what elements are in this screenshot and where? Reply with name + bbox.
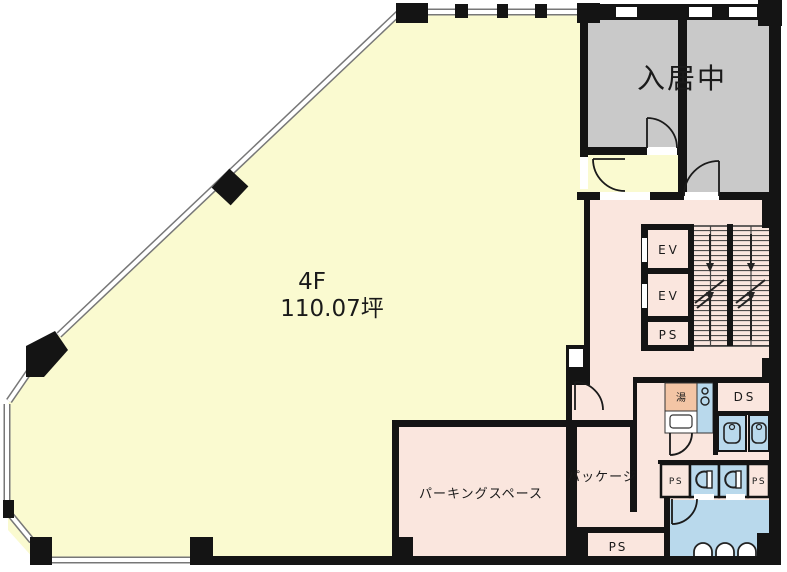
wall-segment — [566, 527, 670, 533]
stairwell — [694, 224, 769, 346]
wall-segment — [641, 224, 694, 230]
wall-segment — [566, 385, 572, 420]
elevator-upper-label: EV — [658, 243, 680, 257]
entry-vestibule — [580, 155, 678, 192]
wall-segment — [762, 196, 781, 228]
shaft-box — [569, 349, 583, 367]
toilet-tank-icon — [736, 471, 741, 488]
toilet-stall — [690, 464, 719, 497]
column-block — [455, 4, 468, 18]
wall-segment — [211, 556, 781, 565]
floor-plan-page: 4F 110.07坪 入居中 EV EV PS 湯 DS PS PS パッケージ… — [0, 0, 787, 567]
floor-plan-drawing: 4F 110.07坪 入居中 EV EV PS 湯 DS PS PS パッケージ… — [0, 0, 787, 567]
wall-segment — [392, 420, 399, 563]
wall-segment — [648, 316, 688, 322]
occupied-room-right — [687, 10, 770, 196]
toilet-tank-icon — [707, 471, 712, 488]
doorway-gap — [647, 147, 677, 155]
package-room-label: パッケージ — [567, 470, 637, 485]
column-block — [396, 3, 428, 23]
wall-segment — [630, 420, 637, 512]
hot-water-label: 湯 — [676, 391, 686, 404]
doorway-gap — [580, 157, 588, 189]
stall-door-gap — [726, 494, 745, 500]
doorway-gap — [684, 192, 719, 200]
doorway-gap — [600, 192, 650, 200]
window-gap — [729, 7, 757, 17]
column-block — [190, 537, 213, 565]
parking-room-label: パーキングスペース — [419, 487, 543, 502]
wall-segment — [392, 420, 637, 427]
elevator-door-gap — [642, 238, 647, 262]
wall-segment — [762, 358, 781, 381]
wall-segment — [580, 10, 588, 157]
column-block — [3, 500, 14, 518]
pipe-space-room-label: PS — [609, 540, 628, 554]
wall-segment — [678, 8, 687, 196]
wall-segment — [688, 224, 694, 351]
kitchenette-sink-unit — [697, 383, 713, 433]
window-gap — [616, 7, 637, 17]
unit-floor-label: 4F — [298, 269, 326, 295]
urinal-stall — [718, 415, 746, 451]
stair-divider-wall — [727, 224, 733, 346]
column-block — [497, 4, 508, 18]
column-block — [30, 537, 52, 565]
window-gap — [689, 7, 712, 17]
column-block — [535, 4, 547, 18]
sink-icon — [670, 415, 692, 428]
elevator-door-gap — [642, 284, 647, 308]
wall-segment — [633, 377, 769, 383]
wall-segment — [648, 268, 688, 274]
duct-space-label: DS — [734, 390, 757, 404]
wall-segment — [769, 3, 781, 565]
elevator-lower-label: EV — [658, 289, 680, 303]
wall-segment — [641, 345, 694, 351]
core-pipe-space-label: PS — [659, 328, 680, 342]
occupied-label: 入居中 — [637, 62, 727, 95]
pipe-space-left-label: PS — [669, 477, 683, 487]
unit-area-label: 110.07坪 — [280, 296, 383, 322]
pipe-space-right-label: PS — [752, 477, 766, 487]
toilet-stall — [719, 464, 748, 497]
wall-segment — [584, 196, 590, 345]
